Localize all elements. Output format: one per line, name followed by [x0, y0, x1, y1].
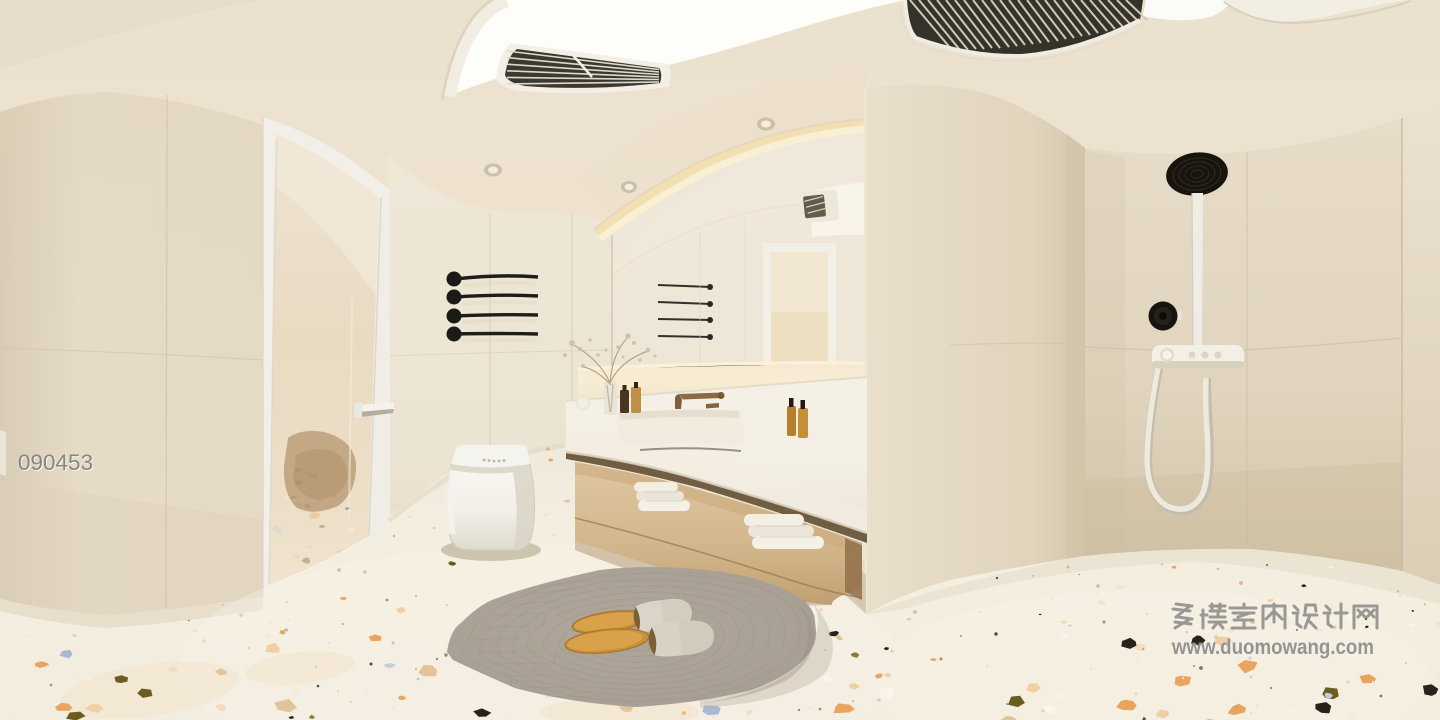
svg-text:090453: 090453 [18, 450, 93, 475]
svg-text:www.duomowang.com: www.duomowang.com [1171, 636, 1374, 659]
